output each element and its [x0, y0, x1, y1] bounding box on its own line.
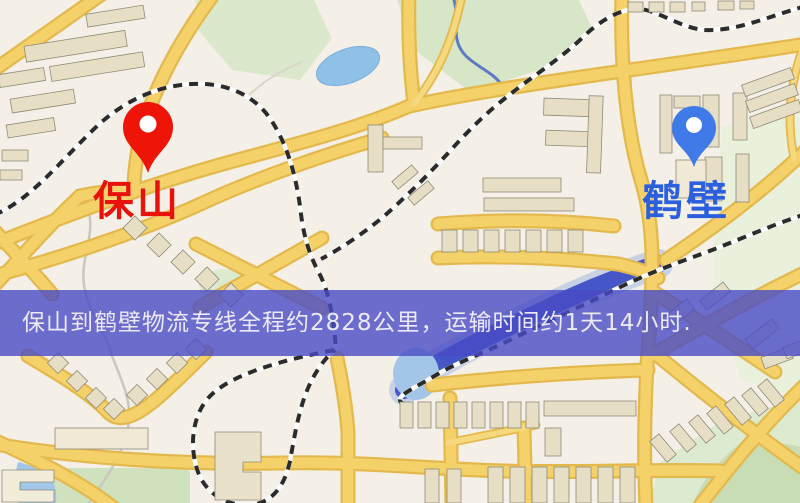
- route-info-banner: 保山到鹤壁物流专线全程约2828公里，运输时间约1天14小时.: [0, 290, 800, 356]
- map-canvas[interactable]: [0, 0, 800, 503]
- destination-pin[interactable]: [668, 103, 720, 171]
- origin-pin-body: [123, 102, 173, 173]
- origin-pin[interactable]: [118, 99, 178, 177]
- destination-pin-hole: [686, 117, 702, 133]
- route-info-text: 保山到鹤壁物流专线全程约2828公里，运输时间约1天14小时.: [22, 310, 692, 336]
- destination-pin-body: [672, 106, 716, 167]
- destination-label: 鹤壁: [642, 181, 730, 222]
- origin-pin-hole: [140, 116, 157, 133]
- origin-label: 保山: [93, 181, 181, 222]
- map-view: 保山 鹤壁 保山到鹤壁物流专线全程约2828公里，运输时间约1天14小时.: [0, 0, 800, 503]
